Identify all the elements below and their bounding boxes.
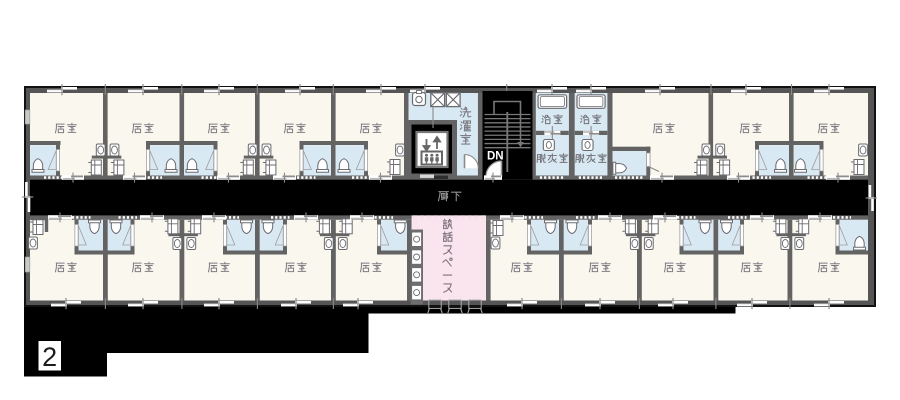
svg-text:2: 2 — [42, 342, 57, 372]
